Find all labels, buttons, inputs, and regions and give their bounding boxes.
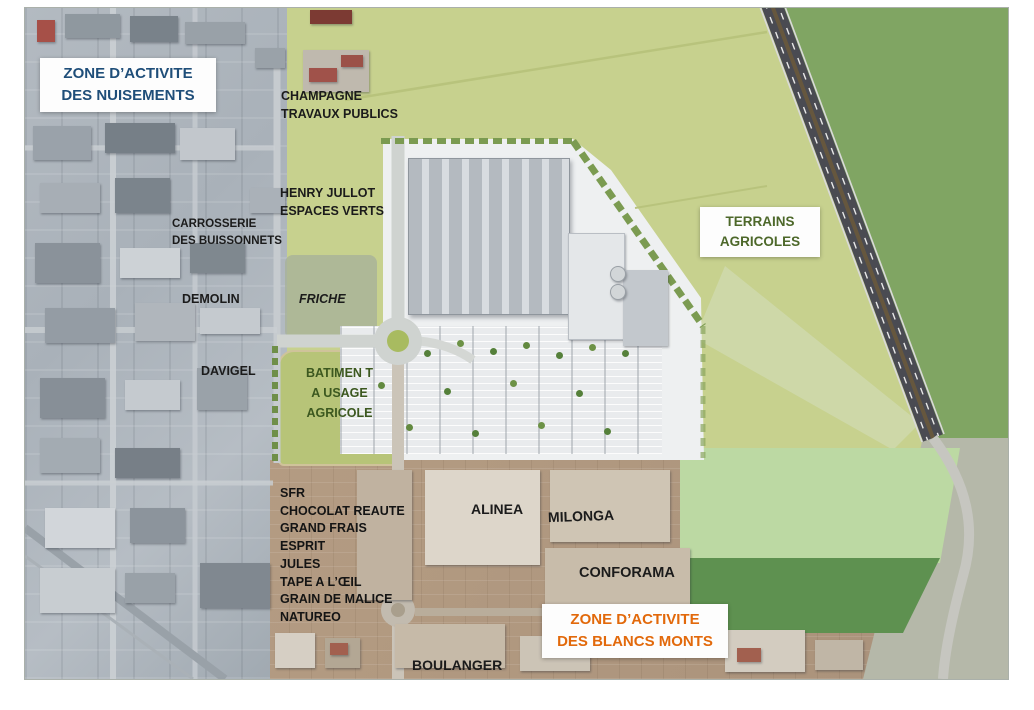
building bbox=[255, 48, 285, 68]
field-line bbox=[345, 32, 767, 100]
zone-label-line: DES BLANCS MONTS bbox=[557, 631, 713, 653]
building bbox=[815, 640, 863, 670]
label-davigel: DAVIGEL bbox=[201, 363, 256, 381]
building bbox=[115, 448, 180, 478]
building bbox=[105, 123, 175, 153]
building bbox=[130, 508, 185, 543]
place-label-line: TRAVAUX PUBLICS bbox=[281, 105, 398, 123]
warehouse-annex bbox=[623, 270, 668, 346]
building bbox=[125, 573, 175, 603]
building bbox=[130, 16, 178, 42]
label-milonga: MILONGA bbox=[548, 506, 615, 528]
label-terrains-agricoles: TERRAINS AGRICOLES bbox=[700, 207, 820, 257]
building bbox=[200, 563, 270, 608]
store-list-item: SFR bbox=[280, 485, 405, 503]
label-boulanger: BOULANGER bbox=[412, 656, 502, 676]
building-red-roof bbox=[330, 643, 348, 655]
silo-tank bbox=[610, 266, 626, 282]
aerial-map: ZONE D’ACTIVITE DES NUISEMENTS TERRAINS … bbox=[25, 8, 1008, 679]
store-list-item: NATUREO bbox=[280, 609, 405, 627]
store-list-item: ESPRIT bbox=[280, 538, 405, 556]
building bbox=[180, 128, 235, 160]
place-label-line: A USAGE bbox=[287, 383, 392, 403]
store-list-item: GRAIN DE MALICE bbox=[280, 591, 405, 609]
label-batiment-agricole: BATIMEN T A USAGE AGRICOLE bbox=[287, 363, 392, 423]
roundabout-main-center bbox=[387, 330, 409, 352]
label-zone-blancs-monts: ZONE D’ACTIVITE DES BLANCS MONTS bbox=[542, 604, 728, 658]
place-label-line: CHAMPAGNE bbox=[281, 87, 398, 105]
label-conforama: CONFORAMA bbox=[579, 563, 675, 583]
local-road-curve bbox=[933, 438, 969, 679]
building bbox=[45, 308, 115, 343]
building bbox=[125, 380, 180, 410]
building bbox=[40, 183, 100, 213]
zone-label-line: ZONE D’ACTIVITE bbox=[570, 609, 699, 631]
label-henry-jullot: HENRY JULLOT ESPACES VERTS bbox=[280, 184, 384, 220]
label-zone-nuisements: ZONE D’ACTIVITE DES NUISEMENTS bbox=[40, 58, 216, 112]
page: { "page": { "type": "aerial-development-… bbox=[0, 0, 1034, 710]
building bbox=[65, 14, 120, 38]
building-red-roof bbox=[341, 55, 363, 67]
building bbox=[40, 568, 115, 613]
label-champagne-travaux-publics: CHAMPAGNE TRAVAUX PUBLICS bbox=[281, 87, 398, 123]
building-red-roof bbox=[737, 648, 761, 662]
place-label-line: DES BUISSONNETS bbox=[172, 233, 282, 250]
building bbox=[40, 438, 100, 473]
building bbox=[35, 243, 100, 283]
building bbox=[120, 248, 180, 278]
building-red-roof bbox=[309, 68, 337, 82]
label-demolin: DEMOLIN bbox=[182, 291, 240, 309]
site-access-road-east bbox=[419, 341, 473, 360]
building bbox=[45, 508, 115, 548]
label-alinea: ALINEA bbox=[471, 500, 523, 520]
place-label-line: BATIMEN T bbox=[287, 363, 392, 383]
store-list-item: JULES bbox=[280, 556, 405, 574]
field-line bbox=[635, 186, 767, 208]
warehouse-building bbox=[408, 158, 570, 315]
zone-label-line: AGRICOLES bbox=[720, 232, 800, 252]
store-list-item: CHOCOLAT REAUTE bbox=[280, 503, 405, 521]
store-list-item: TAPE A L’ŒIL bbox=[280, 574, 405, 592]
building bbox=[37, 20, 55, 42]
place-label-line: HENRY JULLOT bbox=[280, 184, 384, 202]
store-list-item: GRAND FRAIS bbox=[280, 520, 405, 538]
building bbox=[185, 22, 245, 44]
place-label-line: ESPACES VERTS bbox=[280, 202, 384, 220]
label-store-list: SFR CHOCOLAT REAUTE GRAND FRAIS ESPRIT J… bbox=[280, 485, 405, 627]
place-label-line: AGRICOLE bbox=[287, 403, 392, 423]
label-carrosserie: CARROSSERIE DES BUISSONNETS bbox=[172, 216, 282, 250]
building bbox=[115, 178, 170, 213]
building bbox=[40, 378, 105, 418]
zone-label-line: DES NUISEMENTS bbox=[61, 85, 194, 107]
building bbox=[200, 308, 260, 334]
building bbox=[33, 126, 91, 160]
zone-label-line: TERRAINS bbox=[725, 212, 794, 232]
building-barn-roof bbox=[310, 10, 352, 24]
place-label-line: CARROSSERIE bbox=[172, 216, 282, 233]
silo-tank bbox=[610, 284, 626, 300]
label-friche: FRICHE bbox=[299, 291, 346, 309]
building bbox=[275, 633, 315, 668]
zone-label-line: ZONE D’ACTIVITE bbox=[63, 63, 192, 85]
building bbox=[135, 303, 195, 341]
